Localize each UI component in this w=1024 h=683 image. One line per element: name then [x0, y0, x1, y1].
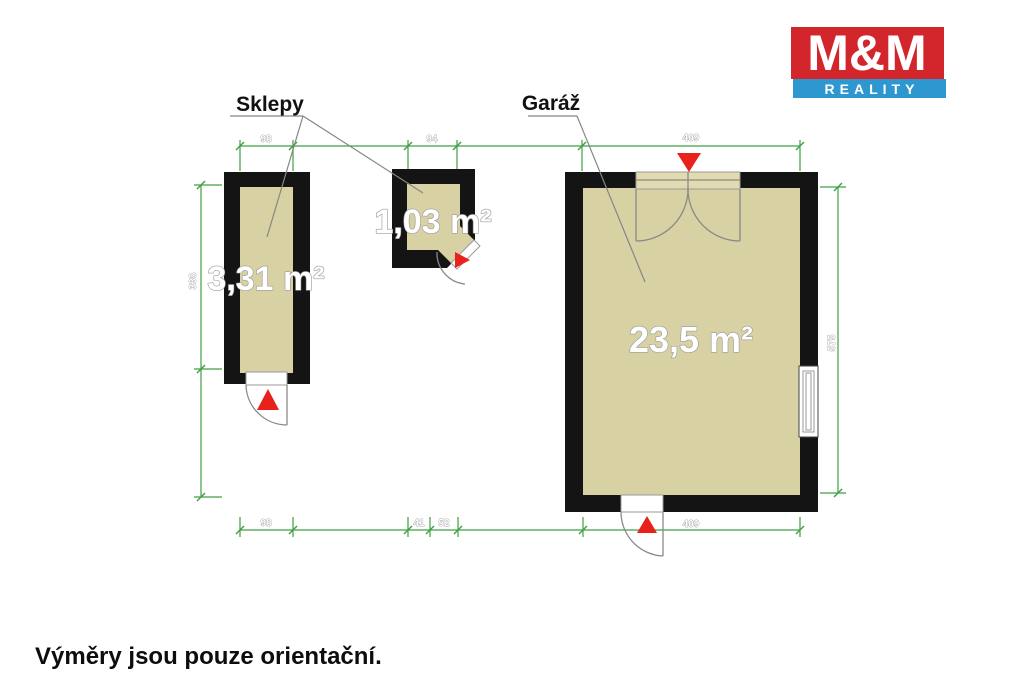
- dim-right-garage-height: 575: [827, 334, 838, 351]
- disclaimer-note: Výměry jsou pouze orientační.: [35, 643, 382, 670]
- cellars-leader-to-small-cellar: [303, 116, 423, 193]
- dim-left-cellar-height: 338: [188, 272, 199, 289]
- room-cellar-long: [224, 172, 310, 425]
- dim-bottom-garage: 409: [683, 519, 700, 530]
- room-name-labels: Sklepy Garáž: [236, 92, 580, 116]
- dim-bottom-segment-2: 52: [438, 518, 450, 529]
- cellar-small-area-label: 1,03 m²: [374, 203, 491, 241]
- cellar-long-entrance-arrow-icon: [257, 389, 279, 410]
- logo: M&M REALITY: [791, 25, 946, 98]
- dim-top-cellar-small: 94: [426, 134, 438, 145]
- logo-name: M&M: [807, 25, 926, 81]
- garage-gate-arrow-icon: [677, 153, 701, 172]
- dim-top-garage: 409: [683, 133, 700, 144]
- cellar-long-door-panel: [246, 372, 287, 385]
- garage-door-swing-arc: [621, 512, 663, 556]
- garage-door-arrow-icon: [637, 516, 657, 533]
- floor-plan-page: 98 94 409 98 41 52 409 338 575: [0, 0, 1024, 683]
- cellar-long-area-label: 3,31 m²: [207, 260, 324, 298]
- logo-subtitle: REALITY: [825, 81, 920, 97]
- dim-top-cellar-long: 98: [260, 134, 272, 145]
- dim-bottom-cellar-long: 98: [260, 518, 272, 529]
- dim-bottom-segment-1: 41: [413, 518, 425, 529]
- cellars-label: Sklepy: [236, 93, 304, 116]
- floor-plan-svg: 98 94 409 98 41 52 409 338 575: [0, 0, 1024, 683]
- garage-label: Garáž: [522, 92, 580, 115]
- garage-door-opening: [621, 495, 663, 512]
- garage-window-glass: [806, 373, 811, 430]
- garage-area-label: 23,5 m²: [629, 319, 753, 360]
